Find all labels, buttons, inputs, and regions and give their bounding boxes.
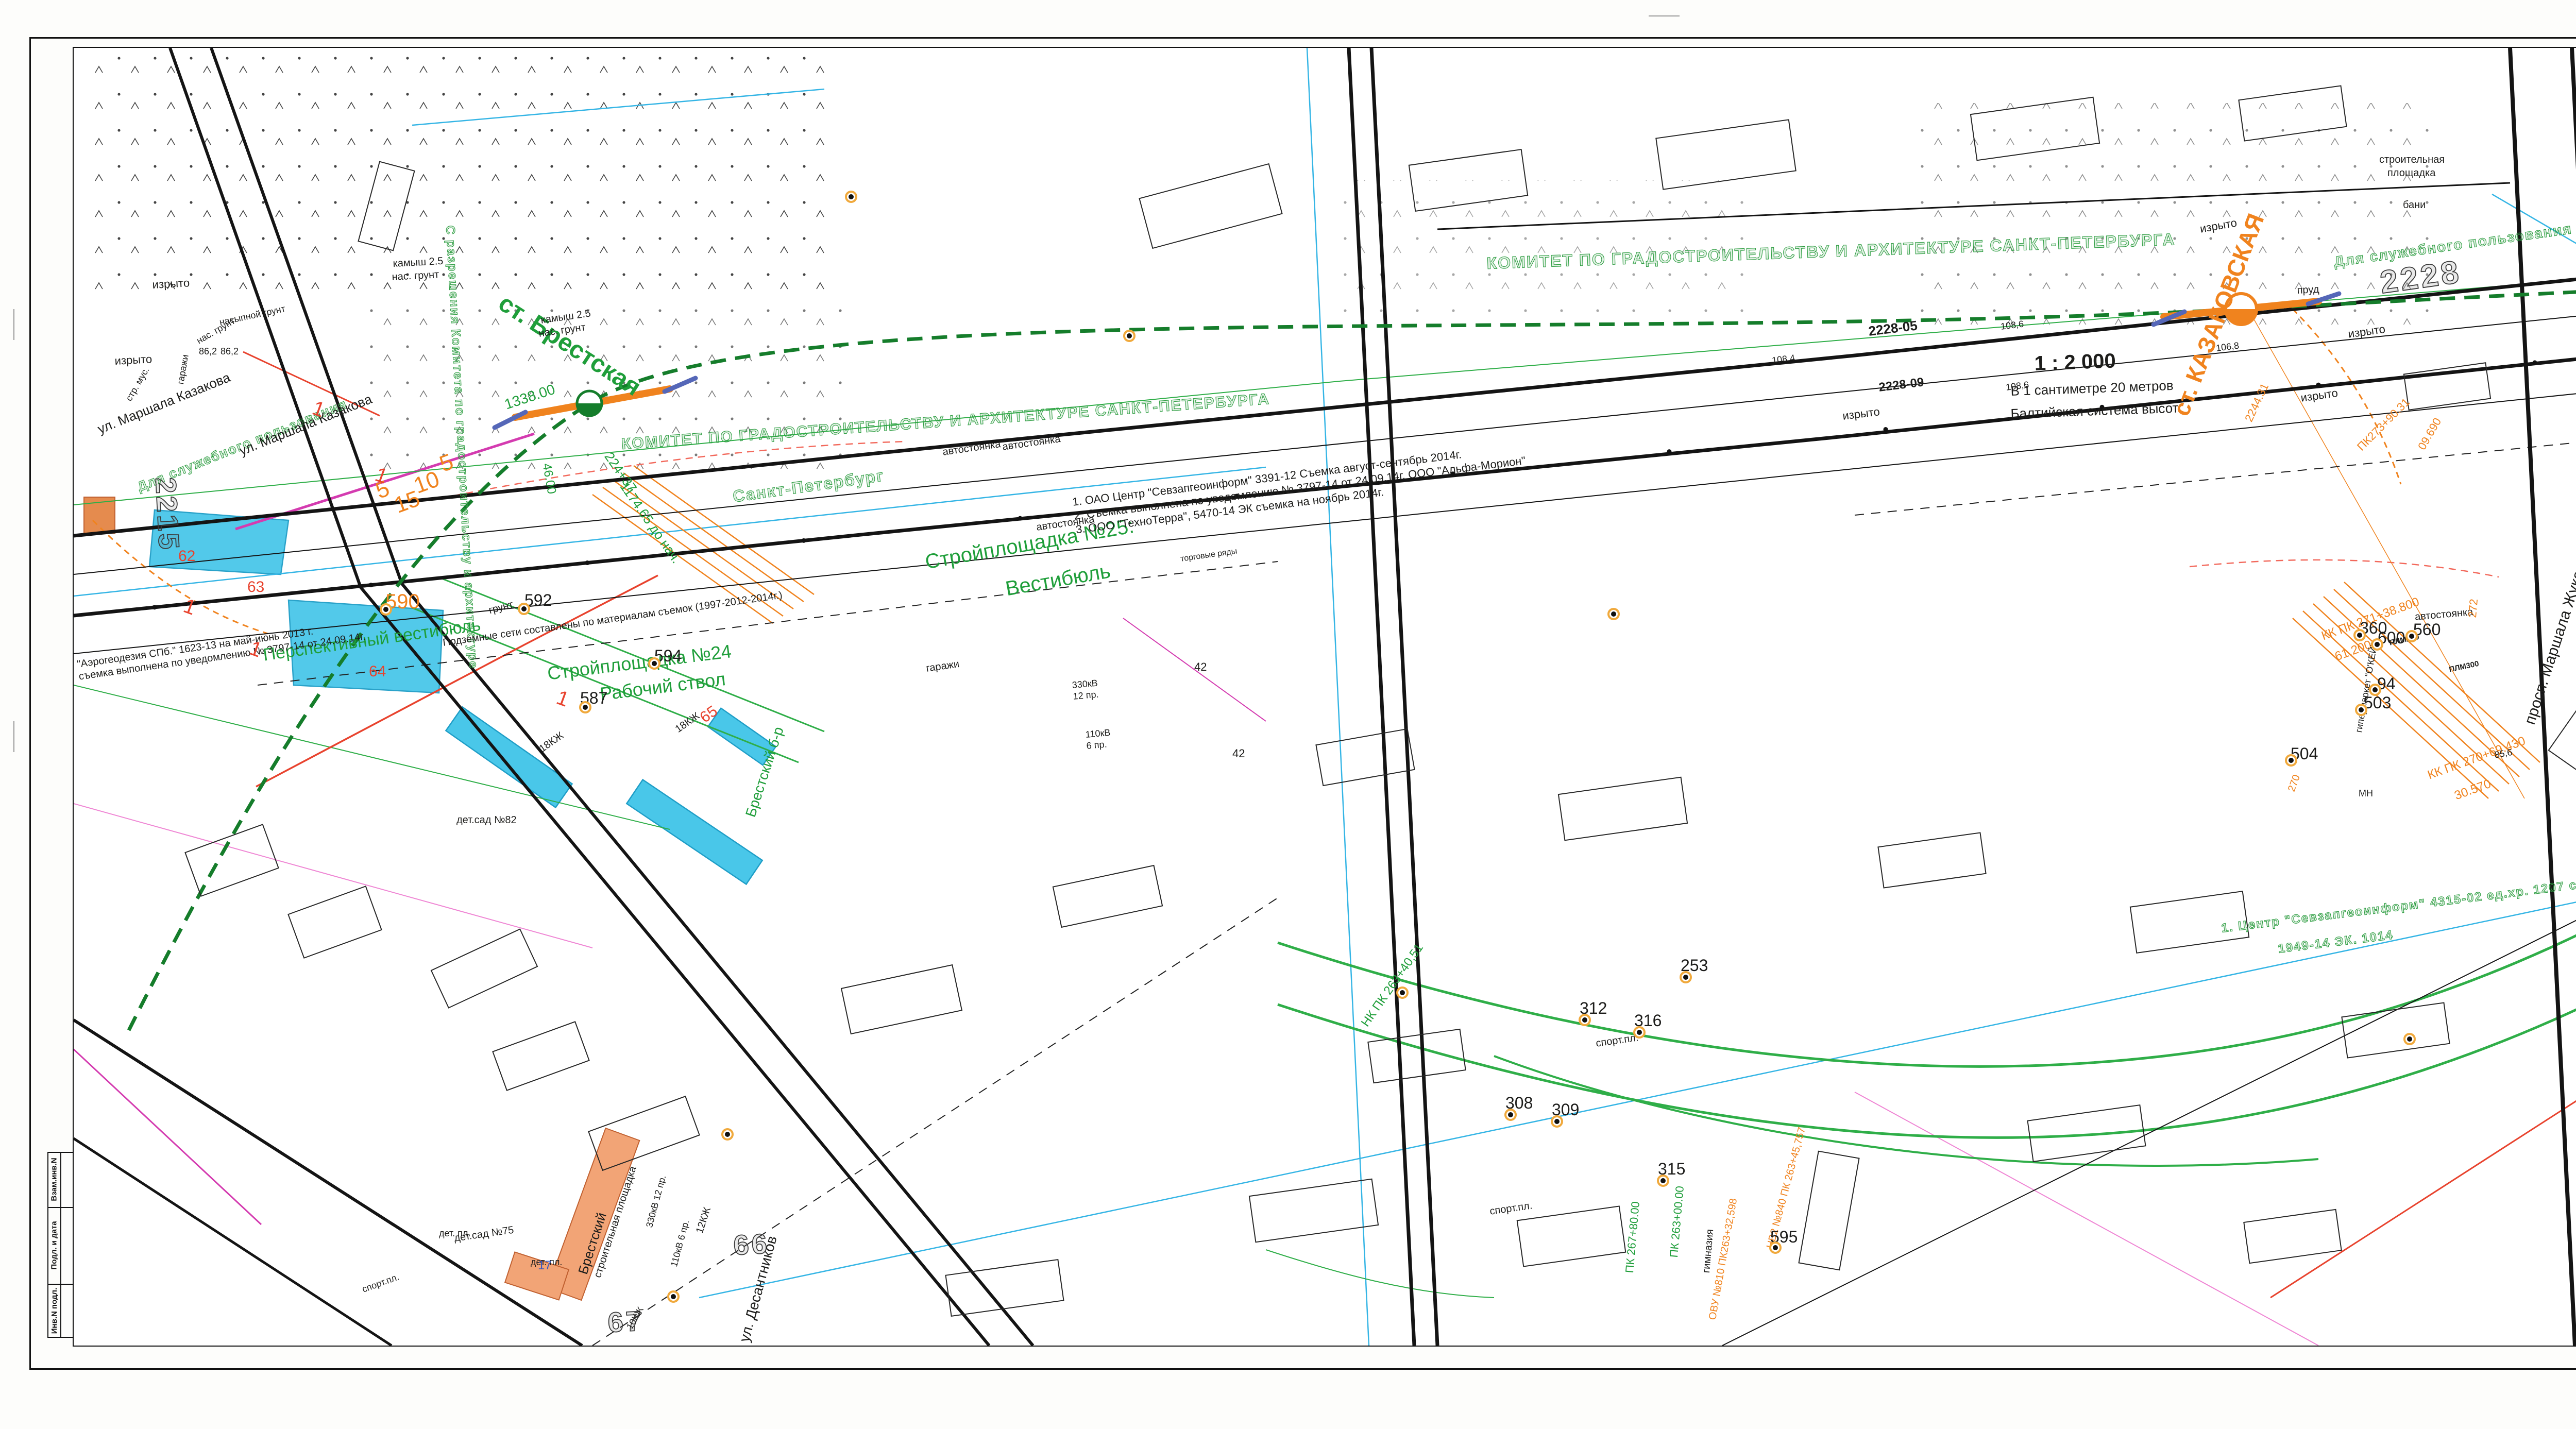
pink-lines	[74, 804, 2318, 1346]
map-linework	[74, 48, 2576, 1346]
station-symbol-brestskaya	[577, 391, 602, 416]
station-symbol-kazakovskaya	[2226, 294, 2257, 325]
ponds	[149, 510, 443, 693]
fold-mark	[1649, 15, 1680, 16]
fold-mark	[13, 309, 14, 340]
side-stamp-label: Инв.N подл.	[50, 1288, 59, 1334]
side-stamp-label: Подл. и дата	[50, 1221, 59, 1269]
map-area[interactable]	[74, 48, 2576, 1346]
fold-mark	[13, 721, 14, 752]
sheet: { "sheet": { "corner_sheet_number": "15"…	[0, 0, 2576, 1383]
side-stamp-label: Взам.инв.N	[50, 1158, 59, 1201]
